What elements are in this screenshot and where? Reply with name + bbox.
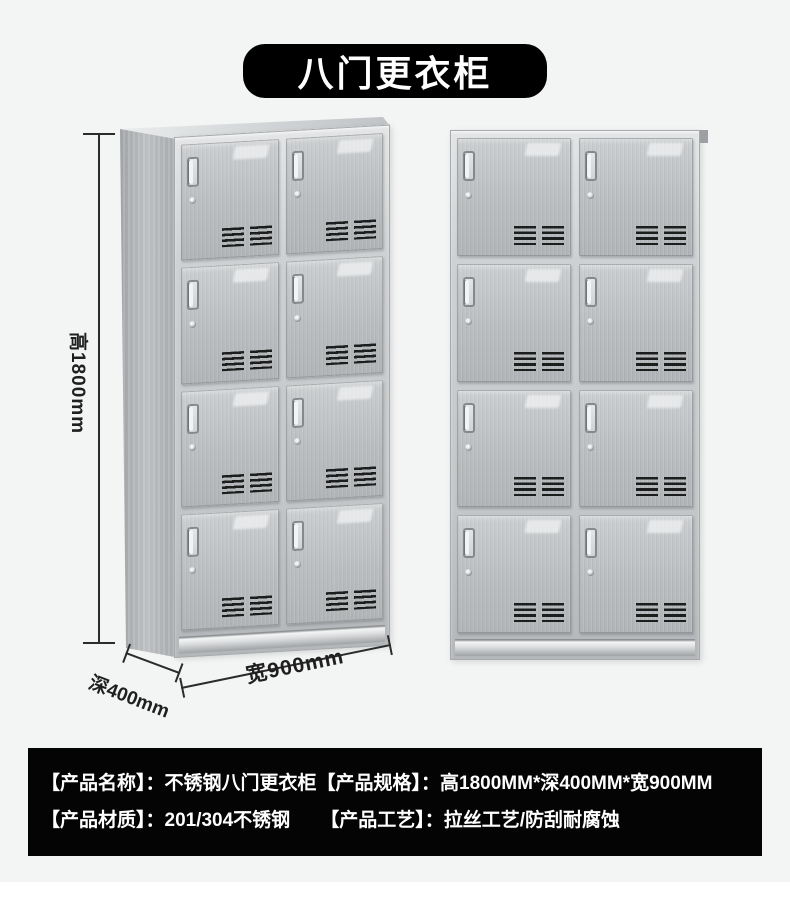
door-handle-icon <box>463 151 475 181</box>
vent-slots <box>222 350 244 370</box>
keyhole-icon <box>587 444 594 451</box>
keyhole-icon <box>294 191 301 198</box>
vent-slots <box>664 352 686 371</box>
spec-material: 【产品材质】：201/304不锈钢 <box>41 810 290 831</box>
reflection-highlight <box>525 520 562 533</box>
reflection-highlight <box>337 508 374 523</box>
vent-slots <box>222 474 244 494</box>
locker-door <box>286 133 384 255</box>
cabinet-base <box>455 639 695 656</box>
door-handle-icon <box>292 397 304 428</box>
keyhole-icon <box>465 444 472 451</box>
reflection-highlight <box>647 143 684 156</box>
cabinet-corner-edge <box>700 130 708 143</box>
keyhole-icon <box>189 197 196 204</box>
locker-door <box>286 379 384 501</box>
door-handle-icon <box>585 528 597 558</box>
vent-slots <box>222 227 244 247</box>
door-handle-icon <box>585 403 597 433</box>
locker-door <box>457 138 571 256</box>
vent-slots <box>636 477 658 496</box>
keyhole-icon <box>465 569 472 576</box>
locker-door <box>181 139 279 261</box>
spec-size: 【产品规格】：高1800MM*深400MM*宽900MM <box>317 773 713 794</box>
keyhole-icon <box>587 192 594 199</box>
vent-slots <box>664 226 686 245</box>
spec-name: 【产品名称】：不锈钢八门更衣柜 <box>41 773 317 794</box>
vent-slots <box>354 220 376 240</box>
door-handle-icon <box>187 403 199 434</box>
locker-door <box>181 509 279 631</box>
vent-slots <box>326 344 348 364</box>
keyhole-icon <box>189 444 196 451</box>
cabinet-side-panel <box>118 128 180 660</box>
door-handle-icon <box>463 403 475 433</box>
vent-grille-icon <box>222 595 272 617</box>
door-handle-icon <box>187 157 199 188</box>
vent-slots <box>250 595 272 615</box>
locker-door <box>457 515 571 633</box>
door-handle-icon <box>187 526 199 557</box>
reflection-highlight <box>232 145 269 160</box>
door-handle-icon <box>187 280 199 311</box>
vent-slots <box>514 603 536 622</box>
door-handle-icon <box>463 277 475 307</box>
vent-grille-icon <box>514 477 564 496</box>
vent-slots <box>250 226 272 246</box>
vent-grille-icon <box>222 349 272 371</box>
vent-slots <box>514 352 536 371</box>
locker-door <box>579 264 693 382</box>
keyhole-icon <box>294 561 301 568</box>
page-title: 八门更衣柜 <box>243 44 547 98</box>
reflection-highlight <box>337 262 374 277</box>
vent-slots <box>250 349 272 369</box>
vent-slots <box>636 352 658 371</box>
spec-line-2: 【产品材质】：201/304不锈钢【产品工艺】：拉丝工艺/防刮耐腐蚀 <box>41 802 750 839</box>
vent-slots <box>636 226 658 245</box>
vent-grille-icon <box>636 477 686 496</box>
vent-slots <box>326 221 348 241</box>
door-handle-icon <box>292 151 304 182</box>
door-handle-icon <box>585 277 597 307</box>
vent-slots <box>636 603 658 622</box>
locker-door <box>286 256 384 378</box>
door-handle-icon <box>292 274 304 305</box>
door-handle-icon <box>292 520 304 551</box>
depth-dimension-label: 深400mm <box>85 668 174 723</box>
vent-grille-icon <box>222 472 272 494</box>
cabinet-base <box>179 625 385 654</box>
product-spec-panel: 【产品名称】：不锈钢八门更衣柜【产品规格】：高1800MM*深400MM*宽90… <box>28 748 762 856</box>
keyhole-icon <box>587 569 594 576</box>
page-title-text: 八门更衣柜 <box>297 45 492 97</box>
vent-slots <box>542 477 564 496</box>
keyhole-icon <box>465 318 472 325</box>
vent-slots <box>514 477 536 496</box>
reflection-highlight <box>232 514 269 529</box>
vent-slots <box>664 603 686 622</box>
reflection-highlight <box>647 269 684 282</box>
vent-slots <box>354 343 376 363</box>
height-dimension-line <box>98 133 100 644</box>
reflection-highlight <box>337 385 374 400</box>
keyhole-icon <box>294 438 301 445</box>
page-background: 八门更衣柜 高1800mm 深400mm 宽900mm 【产品名称】：不锈钢八门… <box>0 0 790 882</box>
keyhole-icon <box>294 314 301 321</box>
door-handle-icon <box>585 151 597 181</box>
locker-door <box>181 385 279 507</box>
vent-slots <box>542 226 564 245</box>
vent-grille-icon <box>636 603 686 622</box>
vent-grille-icon <box>326 220 376 242</box>
vent-grille-icon <box>222 226 272 248</box>
locker-door <box>181 262 279 384</box>
vent-grille-icon <box>636 226 686 245</box>
locker-door <box>579 138 693 256</box>
vent-slots <box>664 477 686 496</box>
locker-door <box>579 515 693 633</box>
reflection-highlight <box>525 143 562 156</box>
reflection-highlight <box>647 395 684 408</box>
reflection-highlight <box>525 395 562 408</box>
spec-craft: 【产品工艺】：拉丝工艺/防刮耐腐蚀 <box>320 810 620 831</box>
reflection-highlight <box>647 520 684 533</box>
vent-slots <box>354 466 376 486</box>
vent-slots <box>250 472 272 492</box>
keyhole-icon <box>465 192 472 199</box>
cabinet-front-view <box>450 130 700 660</box>
vent-slots <box>222 597 244 617</box>
locker-door <box>579 390 693 508</box>
keyhole-icon <box>189 320 196 327</box>
keyhole-icon <box>587 318 594 325</box>
vent-slots <box>542 352 564 371</box>
height-dimension-label: 高1800mm <box>66 332 93 434</box>
locker-door <box>457 264 571 382</box>
bottom-white-strip <box>0 882 790 901</box>
vent-slots <box>326 591 348 611</box>
locker-door <box>457 390 571 508</box>
vent-grille-icon <box>326 466 376 488</box>
vent-slots <box>354 589 376 609</box>
reflection-highlight <box>232 268 269 283</box>
vent-grille-icon <box>326 589 376 611</box>
spec-line-1: 【产品名称】：不锈钢八门更衣柜【产品规格】：高1800MM*深400MM*宽90… <box>41 765 750 802</box>
vent-grille-icon <box>514 226 564 245</box>
reflection-highlight <box>232 391 269 406</box>
vent-slots <box>326 468 348 488</box>
door-handle-icon <box>463 528 475 558</box>
locker-door <box>286 503 384 625</box>
vent-slots <box>514 226 536 245</box>
reflection-highlight <box>525 269 562 282</box>
vent-grille-icon <box>326 343 376 365</box>
cabinet-3d-front <box>174 125 390 658</box>
vent-grille-icon <box>514 603 564 622</box>
vent-grille-icon <box>636 352 686 371</box>
vent-grille-icon <box>514 352 564 371</box>
keyhole-icon <box>189 567 196 574</box>
reflection-highlight <box>337 139 374 154</box>
vent-slots <box>542 603 564 622</box>
